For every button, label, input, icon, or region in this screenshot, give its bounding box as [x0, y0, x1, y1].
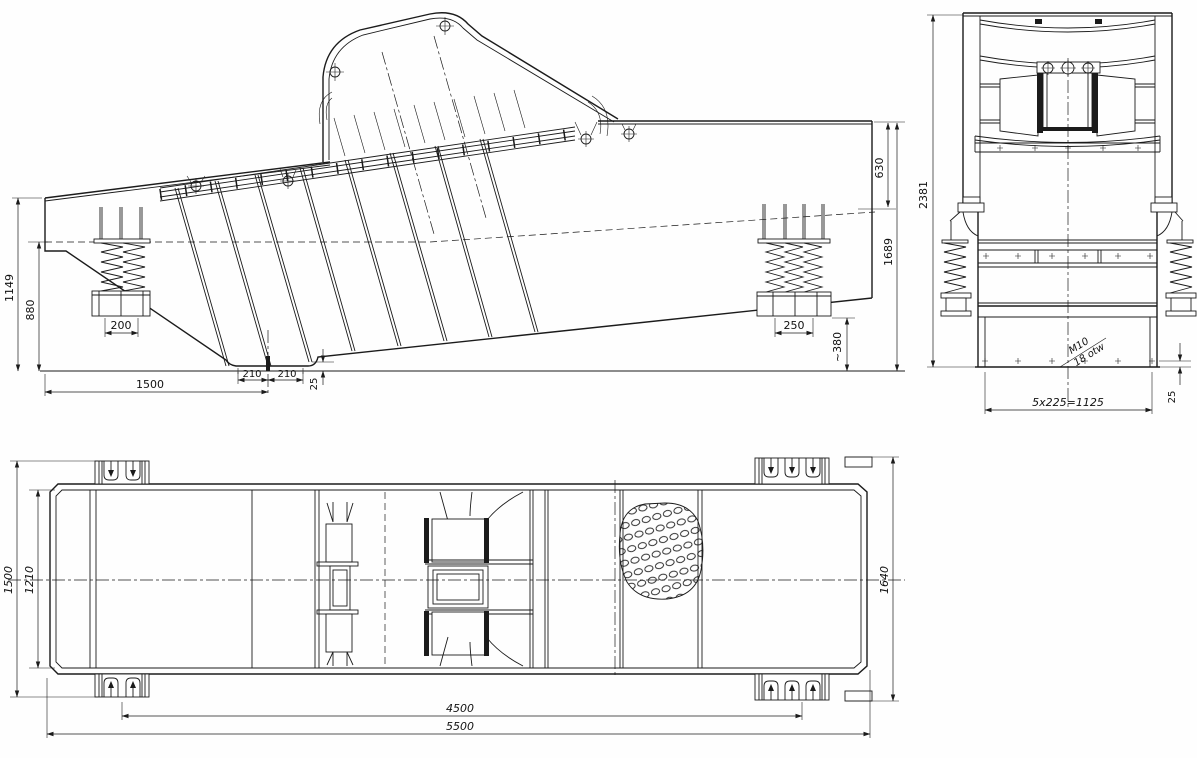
spring-assembly-right [757, 204, 831, 316]
exciter-housing [319, 13, 618, 234]
dim-side-210b: 210 [277, 369, 296, 380]
coil-spring [1170, 243, 1192, 293]
dim-side-1689: 1689 [882, 238, 895, 266]
side-view: 1149 880 200 1500 210 210 25 250 [3, 13, 905, 396]
dim-side-880: 880 [24, 300, 37, 321]
exciter-centerlines [382, 36, 486, 234]
side-ribs [175, 139, 538, 366]
dim-side-1149: 1149 [3, 274, 16, 302]
exciter-center-block [1043, 73, 1092, 130]
deck-dashed-line [45, 212, 875, 242]
perforated-plate [619, 503, 703, 599]
drawing-sheet: 1149 880 200 1500 210 210 25 250 [0, 0, 1197, 758]
spring-assembly-left [92, 207, 150, 316]
exciter-side-block [1097, 75, 1135, 136]
dim-end-1125: 5x225=1125 [1032, 396, 1104, 409]
dim-plan-1210: 1210 [23, 566, 36, 594]
dim-plan-5500: 5500 [446, 720, 474, 733]
coil-spring [766, 243, 784, 292]
dim-plan-1640: 1640 [878, 566, 891, 594]
spring-pad-top-left [95, 461, 149, 484]
coil-spring [123, 243, 145, 291]
exciter-unit-right [424, 492, 533, 666]
plan-view: 1500 1210 1640 4500 5500 [2, 457, 905, 738]
exciter-end [980, 60, 1155, 136]
plan-walls [90, 490, 702, 668]
lower-box [963, 212, 1172, 367]
side-dimensions: 1149 880 200 1500 210 210 25 250 [3, 122, 905, 396]
screen-body-side [45, 121, 872, 366]
end-feet-and-springs [941, 197, 1196, 316]
dim-plan-4500: 4500 [446, 702, 474, 715]
technical-drawing: 1149 880 200 1500 210 210 25 250 [0, 0, 1197, 758]
coil-spring [101, 243, 123, 291]
exciter-side-block [1000, 75, 1038, 136]
deck-rail [160, 127, 575, 201]
dim-side-210a: 210 [242, 369, 261, 380]
dim-side-380: ~380 [831, 332, 844, 362]
spring-pad-top-right [755, 458, 829, 484]
coil-spring [785, 243, 803, 292]
deck-strip [975, 136, 1160, 152]
coil-spring [944, 243, 966, 293]
dim-side-630: 630 [873, 158, 886, 179]
end-view: 2381 5x225=1125 25 M10 18 otw [917, 13, 1196, 414]
discharge-stub [845, 457, 872, 467]
dim-side-250: 250 [784, 319, 805, 332]
dim-side-25: 25 [309, 378, 320, 391]
dim-plan-1500: 1500 [2, 566, 15, 594]
spring-pad-bottom-right [755, 674, 829, 700]
exciter-unit-left [317, 502, 358, 666]
side-short-ribs [334, 90, 525, 156]
dim-end-2381: 2381 [917, 181, 930, 209]
spring-pad-bottom-left [95, 674, 149, 697]
coil-spring [804, 243, 822, 292]
discharge-stub [845, 691, 872, 701]
dim-end-25: 25 [1167, 391, 1178, 404]
dim-side-1500: 1500 [136, 378, 164, 391]
dim-side-200: 200 [111, 319, 132, 332]
